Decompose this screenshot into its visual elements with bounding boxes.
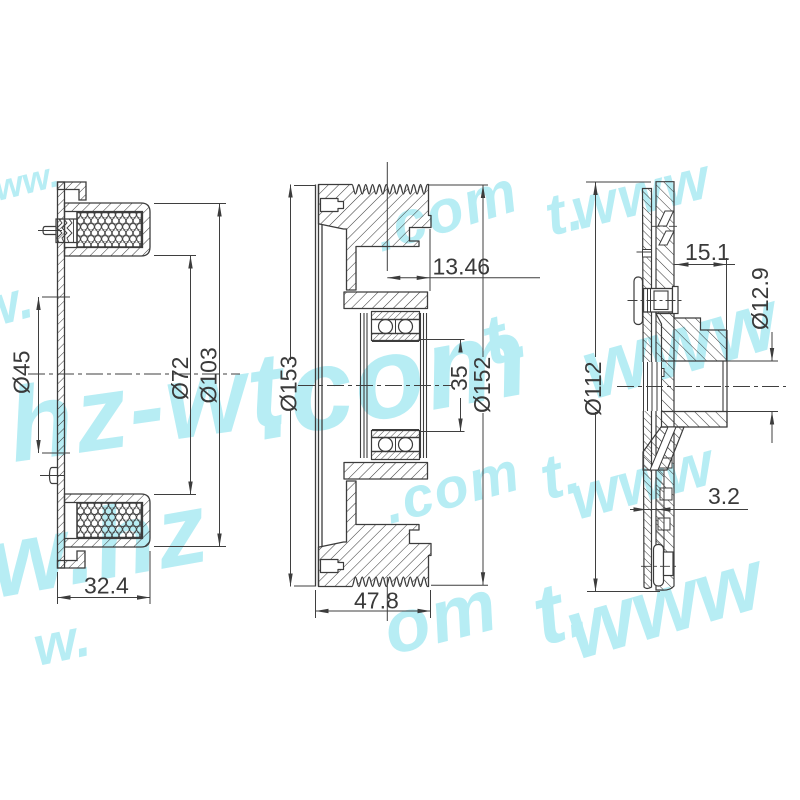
svg-text:Ø112: Ø112 xyxy=(580,361,606,416)
svg-text:Ø152: Ø152 xyxy=(469,357,495,413)
svg-text:35: 35 xyxy=(446,365,472,391)
svg-text:Ø72: Ø72 xyxy=(167,357,193,400)
svg-text:Ø45: Ø45 xyxy=(9,351,35,394)
svg-text:Ø103: Ø103 xyxy=(196,347,222,403)
svg-text:3.2: 3.2 xyxy=(708,483,740,509)
svg-text:Ø153: Ø153 xyxy=(276,356,302,412)
svg-text:47.8: 47.8 xyxy=(354,588,399,614)
svg-text:13.46: 13.46 xyxy=(433,254,491,280)
svg-text:Ø12.9: Ø12.9 xyxy=(747,267,773,330)
svg-text:32.4: 32.4 xyxy=(84,573,129,599)
svg-text:15.1: 15.1 xyxy=(685,239,730,265)
